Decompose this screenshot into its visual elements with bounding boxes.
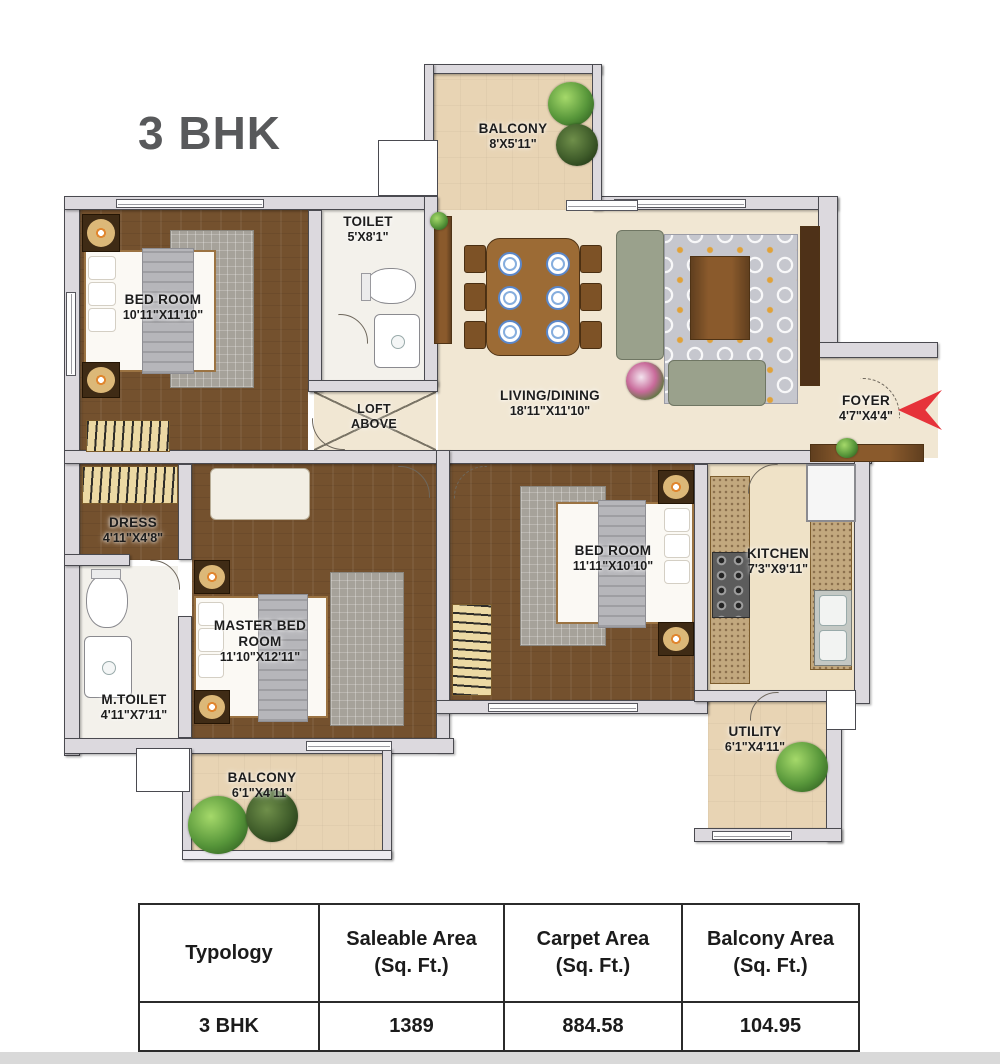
duct-shaft-right (826, 690, 856, 730)
dining-chair (580, 321, 602, 349)
tv-unit (800, 226, 820, 386)
living-label: LIVING/DINING18'11"X11'10" (470, 388, 630, 419)
toilet-basin (374, 314, 420, 368)
dining-chair (464, 321, 486, 349)
window-master (306, 741, 392, 751)
nightstand-lamp (194, 690, 230, 724)
cell-carpet-area: 884.58 (504, 1002, 682, 1051)
wall-toilet-bottom (308, 380, 438, 392)
bedroom2-wardrobe (452, 604, 492, 696)
flower-pot-icon (626, 362, 664, 400)
master-bedroom-label: MASTER BED ROOM11'10"X12'11" (195, 618, 325, 665)
toilet-label: TOILET5'X8'1" (318, 214, 418, 245)
col-header-carpet-area: Carpet Area (Sq. Ft.) (504, 904, 682, 1002)
area-summary-table: Typology Saleable Area (Sq. Ft.) Carpet … (138, 903, 860, 1052)
floor-plan-page: 3 BHK (0, 0, 1000, 1064)
nightstand-lamp (82, 214, 120, 252)
bedroom1-label: BED ROOM10'11"X11'10" (88, 292, 238, 323)
window-bedroom1 (116, 199, 264, 208)
m-toilet-basin (84, 636, 132, 698)
plant-icon (548, 82, 594, 126)
foyer-shelf (810, 444, 924, 462)
balcony-top-label: BALCONY8'X5'11" (435, 121, 591, 152)
col-header-typology: Typology (139, 904, 319, 1002)
table-data-row: 3 BHK 1389 884.58 104.95 (139, 1002, 859, 1051)
kitchen-label: KITCHEN7'3"X9'11" (718, 546, 838, 577)
duct-shaft-left (136, 748, 190, 792)
coffee-table (690, 256, 750, 340)
plant-icon (188, 796, 248, 854)
duct-shaft-top (378, 140, 438, 196)
balcony-slider-door (566, 200, 638, 211)
sink-icon (814, 590, 852, 666)
wall-balcony-top (424, 64, 602, 74)
nightstand-lamp (82, 362, 120, 398)
cell-saleable-area: 1389 (319, 1002, 504, 1051)
wall-mid-left (64, 450, 450, 464)
wall-balcony2-right (382, 748, 392, 858)
col-header-saleable-area: Saleable Area (Sq. Ft.) (319, 904, 504, 1002)
sofa-long (616, 230, 664, 360)
living-console (434, 216, 452, 344)
nightstand-lamp (194, 560, 230, 594)
utility-label: UTILITY6'1"X4'11" (700, 724, 810, 755)
plate-icon (546, 320, 570, 344)
plate-icon (546, 286, 570, 310)
wall-kitchen-right (854, 452, 870, 704)
plate-icon (498, 320, 522, 344)
m-toilet-label: M.TOILET4'11"X7'11" (84, 692, 184, 723)
bedroom2-label: BED ROOM11'11"X10'10" (533, 543, 693, 574)
window-utility (712, 831, 792, 840)
plate-icon (498, 252, 522, 276)
wall-mid-right (436, 450, 872, 464)
wall-right-L-vertical (818, 196, 838, 356)
wall-bottom-left (64, 738, 454, 754)
dress-label: DRESS4'11"X4'8" (83, 515, 183, 546)
fridge-icon (806, 464, 856, 522)
wall-outer-left (64, 196, 80, 756)
sofa-short (668, 360, 766, 406)
loft-label: LOFT ABOVE (343, 402, 405, 432)
m-toilet-wc (86, 574, 128, 628)
dining-chair (580, 245, 602, 273)
wall-right-L-horizontal (818, 342, 938, 358)
window-bedroom2 (488, 703, 638, 712)
bottom-divider (0, 1052, 1000, 1064)
wall-bedroom2-kitchen (694, 464, 708, 704)
foyer-label: FOYER4'7"X4'4" (820, 393, 912, 424)
nightstand-lamp (658, 470, 694, 504)
master-sofa (210, 468, 310, 520)
wall-mtoilet-top (64, 554, 130, 566)
nightstand-lamp (658, 622, 694, 656)
plant-icon (430, 212, 448, 230)
pillow (88, 256, 116, 280)
pillow (664, 508, 690, 532)
bedroom1-wardrobe (86, 420, 170, 452)
table-header-row: Typology Saleable Area (Sq. Ft.) Carpet … (139, 904, 859, 1002)
plant-icon (836, 438, 858, 458)
dining-chair (464, 283, 486, 311)
cell-typology: 3 BHK (139, 1002, 319, 1051)
col-header-balcony-area: Balcony Area (Sq. Ft.) (682, 904, 859, 1002)
cell-balcony-area: 104.95 (682, 1002, 859, 1051)
dining-chair (464, 245, 486, 273)
balcony-bottom-label: BALCONY6'1"X4'11" (192, 770, 332, 801)
toilet-wc (366, 268, 416, 304)
plate-icon (498, 286, 522, 310)
dining-chair (580, 283, 602, 311)
master-rug (330, 572, 404, 726)
page-title: 3 BHK (138, 106, 281, 160)
window-bedroom1-left (66, 292, 76, 376)
plate-icon (546, 252, 570, 276)
dress-wardrobe (82, 466, 178, 504)
